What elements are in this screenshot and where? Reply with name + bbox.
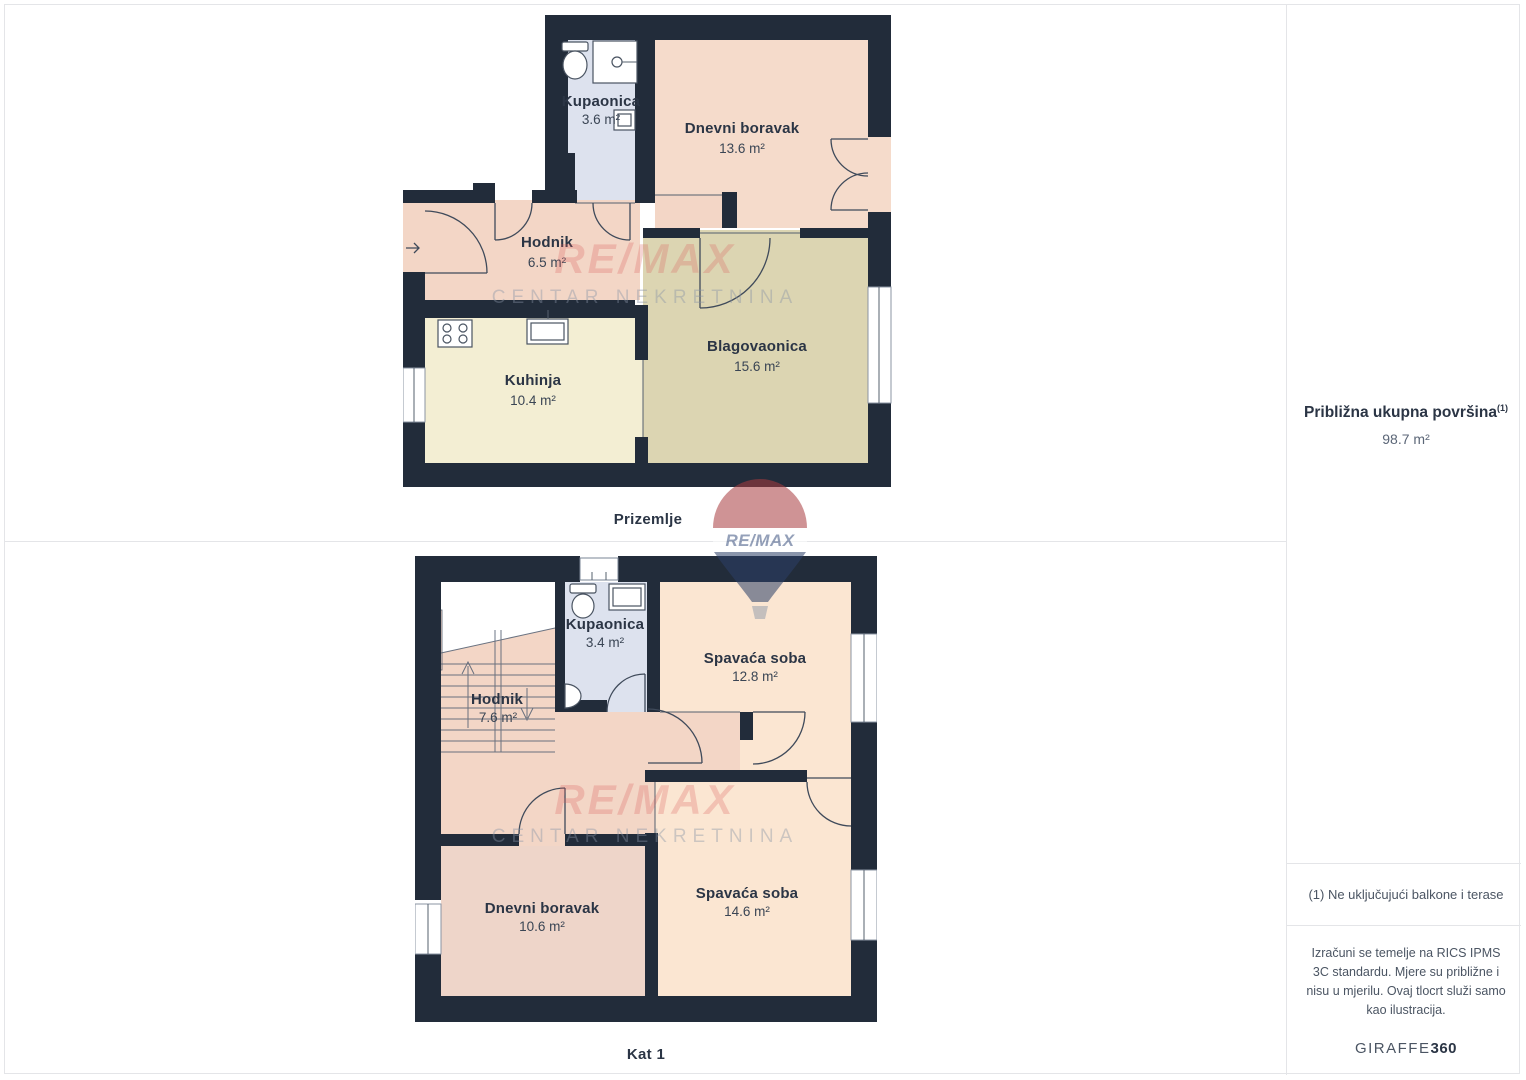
floor-plan-prizemlje: Kupaonica 3.6 m² Dnevni boravak 13.6 m² … xyxy=(403,13,893,489)
area-spavaca-2: 14.6 m² xyxy=(724,904,770,919)
watermark-subtitle: CENTAR NEKRETNINA xyxy=(492,287,798,308)
floor-plan-kat1: Kupaonica 3.4 m² Spavaća soba 12.8 m² Ho… xyxy=(415,556,877,1022)
remax-balloon-logo-icon: RE/MAX xyxy=(710,476,810,621)
area-blagovaonica: 15.6 m² xyxy=(734,359,780,374)
sidebar-total-area: Približna ukupna površina(1) 98.7 m² xyxy=(1296,403,1516,447)
area-dnevni: 10.6 m² xyxy=(519,919,565,934)
sidebar-divider-2 xyxy=(1287,925,1521,926)
watermark-subtitle: CENTAR NEKRETNINA xyxy=(492,826,798,847)
label-kupaonica: Kupaonica xyxy=(566,616,645,633)
area-kupaonica: 3.6 m² xyxy=(582,112,621,127)
chimney xyxy=(580,558,618,580)
floor-label-kat1: Kat 1 xyxy=(415,1046,877,1063)
disclaimer-text: Izračuni se temelje na RICS IPMS 3C stan… xyxy=(1306,944,1506,1020)
label-kuhinja: Kuhinja xyxy=(505,372,562,389)
giraffe360-logo: GIRAFFE360 xyxy=(1306,1040,1506,1057)
stove-icon xyxy=(438,320,472,347)
shower-icon xyxy=(609,584,645,610)
shower-icon xyxy=(593,41,637,83)
window-right xyxy=(868,287,891,403)
area-hodnik: 7.6 m² xyxy=(479,710,518,725)
window-left xyxy=(403,368,425,422)
balloon-top xyxy=(713,479,807,529)
label-dnevni: Dnevni boravak xyxy=(485,900,600,917)
sidebar-disclaimer-block: Izračuni se temelje na RICS IPMS 3C stan… xyxy=(1306,944,1506,1057)
label-blagovaonica: Blagovaonica xyxy=(707,338,807,355)
total-area-value: 98.7 m² xyxy=(1296,431,1516,447)
watermark-brand: RE/MAX xyxy=(554,235,735,282)
sidebar-footnote: (1) Ne uključujući balkone i terase xyxy=(1296,864,1516,924)
window-right-bottom xyxy=(851,870,877,940)
label-spavaca-2: Spavaća soba xyxy=(696,885,799,902)
label-dnevni: Dnevni boravak xyxy=(685,120,800,137)
hodnik-vestibule xyxy=(655,195,722,228)
area-kuhinja: 10.4 m² xyxy=(510,393,556,408)
area-spavaca-1: 12.8 m² xyxy=(732,669,778,684)
panel-divider-horizontal xyxy=(5,541,1286,542)
floor-label-prizemlje: Prizemlje xyxy=(403,511,893,528)
watermark-brand: RE/MAX xyxy=(554,776,735,823)
balloon-cone xyxy=(714,552,806,602)
sidebar-divider-vertical xyxy=(1286,5,1287,1075)
door-opening-floor xyxy=(868,137,891,212)
total-area-title: Približna ukupna površina(1) xyxy=(1296,403,1516,422)
label-spavaca-1: Spavaća soba xyxy=(704,650,807,667)
label-kupaonica: Kupaonica xyxy=(562,93,641,110)
entrance-floor xyxy=(403,203,425,272)
area-dnevni: 13.6 m² xyxy=(719,141,765,156)
balloon-brand-text: RE/MAX xyxy=(725,531,795,550)
balloon-basket xyxy=(752,606,768,619)
window-right-top xyxy=(851,634,877,722)
area-kupaonica: 3.4 m² xyxy=(586,635,625,650)
toilet-icon xyxy=(562,42,588,79)
window-left xyxy=(415,904,441,954)
label-hodnik: Hodnik xyxy=(471,691,523,708)
toilet-icon xyxy=(570,584,596,618)
